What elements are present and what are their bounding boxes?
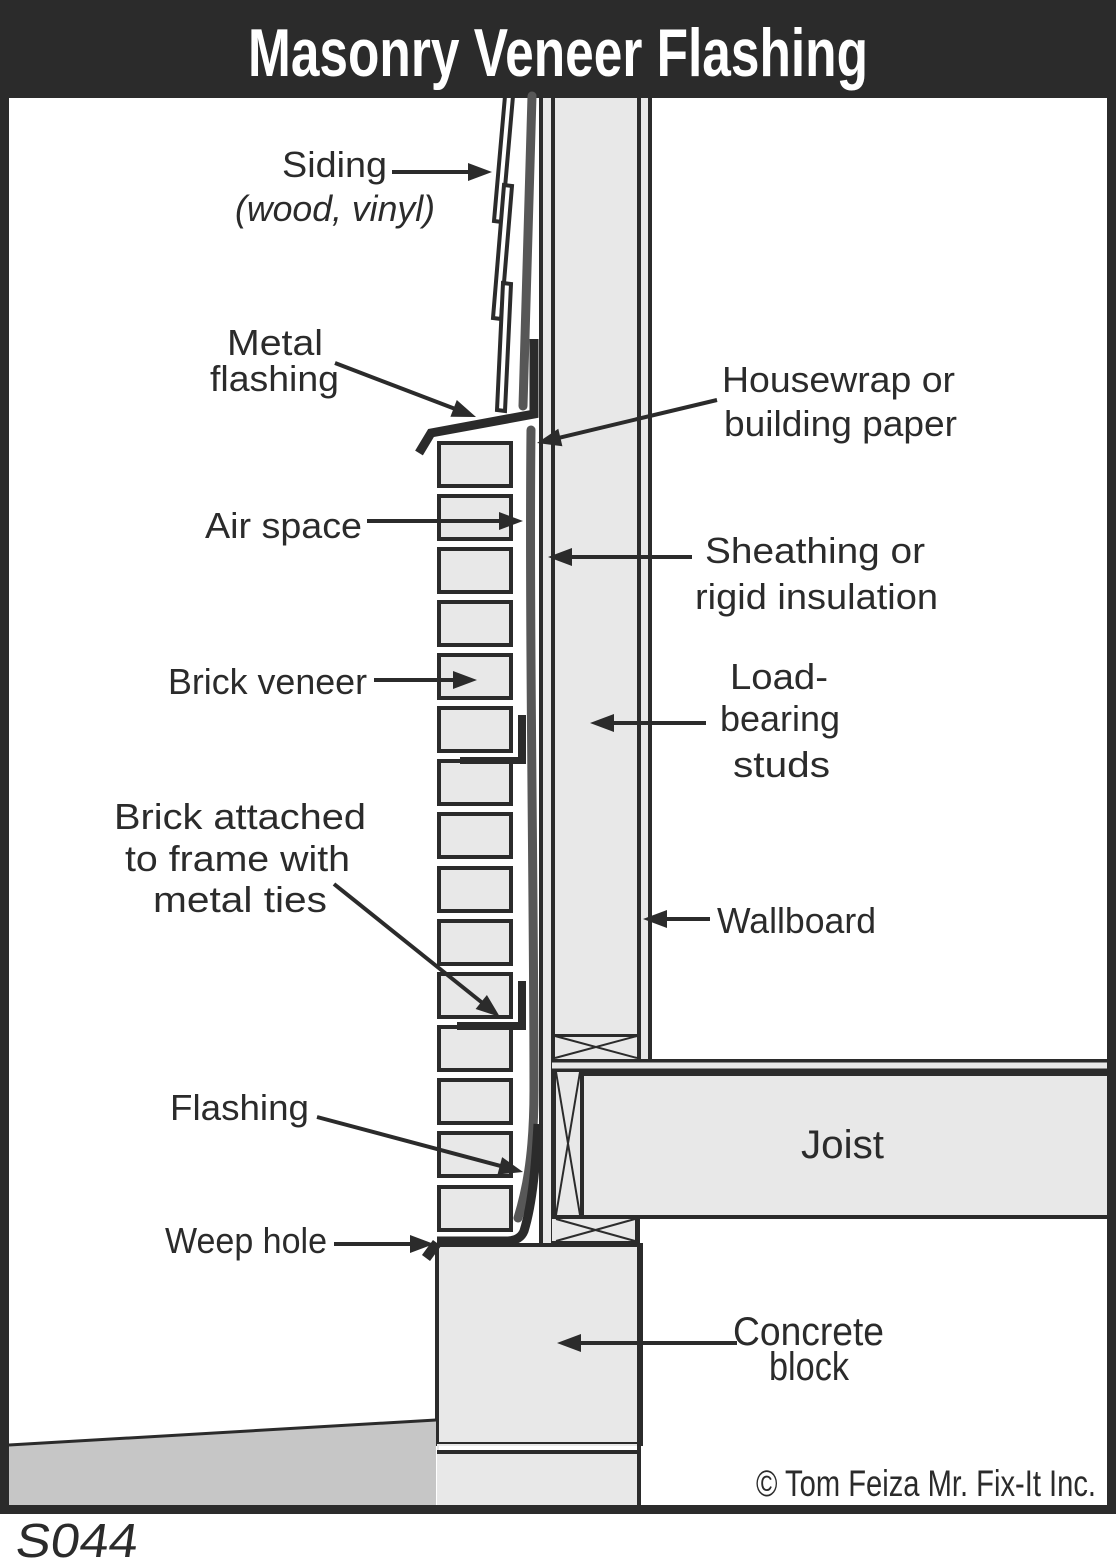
svg-text:Masonry Veneer Flashing: Masonry Veneer Flashing [248,15,868,91]
svg-text:Metal: Metal [227,322,323,363]
svg-text:building paper: building paper [724,403,957,444]
svg-text:Siding: Siding [282,144,387,185]
svg-text:Brick attached: Brick attached [114,796,366,837]
svg-text:Flashing: Flashing [170,1087,309,1128]
svg-text:© Tom Feiza Mr. Fix-It Inc.: © Tom Feiza Mr. Fix-It Inc. [756,1463,1096,1504]
svg-text:Sheathing or: Sheathing or [705,530,925,571]
svg-text:to frame with: to frame with [125,838,350,879]
svg-text:(wood, vinyl): (wood, vinyl) [235,188,435,229]
svg-text:rigid insulation: rigid insulation [695,576,938,617]
svg-text:Air space: Air space [205,505,362,546]
svg-text:Housewrap or: Housewrap or [722,359,955,400]
svg-text:bearing: bearing [720,698,840,739]
svg-text:metal ties: metal ties [153,879,327,920]
svg-text:S044: S044 [12,1514,142,1562]
svg-text:Brick veneer: Brick veneer [168,661,367,702]
svg-text:Joist: Joist [801,1123,884,1167]
svg-text:block: block [769,1345,850,1389]
svg-text:studs: studs [733,744,830,785]
svg-text:flashing: flashing [210,358,339,399]
svg-text:Weep hole: Weep hole [165,1220,327,1261]
svg-text:Wallboard: Wallboard [717,900,876,941]
svg-text:Load-: Load- [730,656,828,697]
